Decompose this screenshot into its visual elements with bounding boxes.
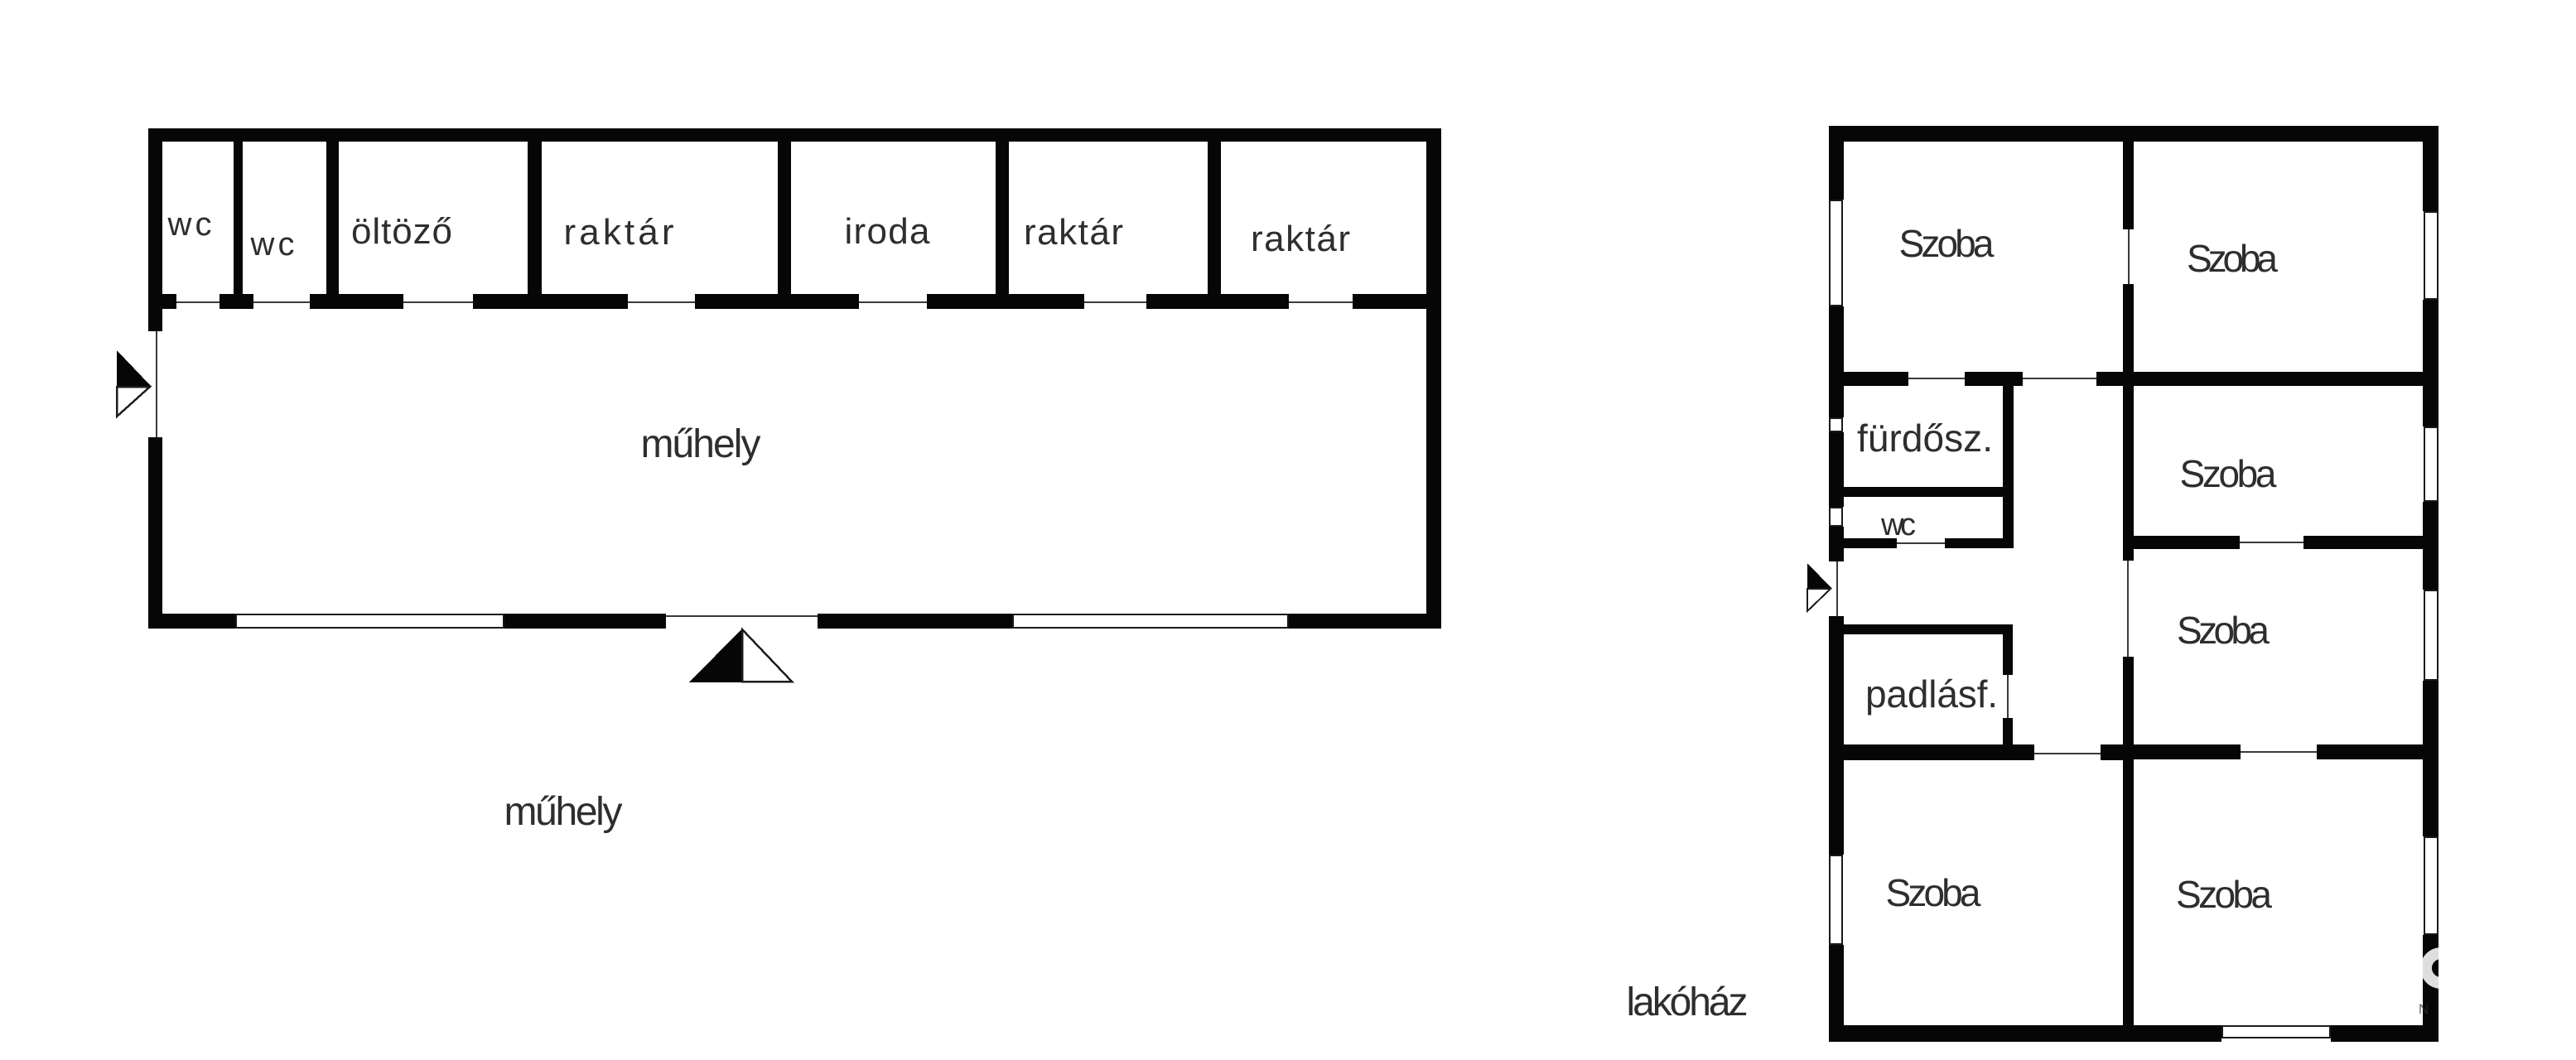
svg-text:raktár: raktár — [564, 212, 674, 253]
svg-text:lakóház: lakóház — [1627, 980, 1749, 1024]
svg-text:Szoba: Szoba — [2180, 452, 2277, 495]
svg-text:Szoba: Szoba — [2187, 237, 2278, 280]
svg-text:raktár: raktár — [1251, 219, 1350, 259]
svg-text:Szoba: Szoba — [2176, 873, 2272, 916]
svg-text:Szoba: Szoba — [1886, 871, 1981, 914]
svg-text:öltöző: öltöző — [351, 211, 452, 252]
svg-text:műhely: műhely — [504, 790, 623, 834]
svg-text:Szoba: Szoba — [2177, 609, 2270, 652]
svg-text:fürdősz.: fürdősz. — [1857, 417, 1993, 460]
svg-text:padlásf.: padlásf. — [1865, 672, 1998, 715]
svg-text:wc: wc — [250, 226, 295, 263]
svg-text:műhely: műhely — [641, 422, 761, 466]
svg-text:wc: wc — [1880, 508, 1916, 542]
svg-text:raktár: raktár — [1024, 212, 1123, 253]
svg-text:N: N — [2419, 1001, 2429, 1017]
svg-text:Szoba: Szoba — [1899, 222, 1995, 265]
svg-text:wc: wc — [167, 206, 212, 243]
